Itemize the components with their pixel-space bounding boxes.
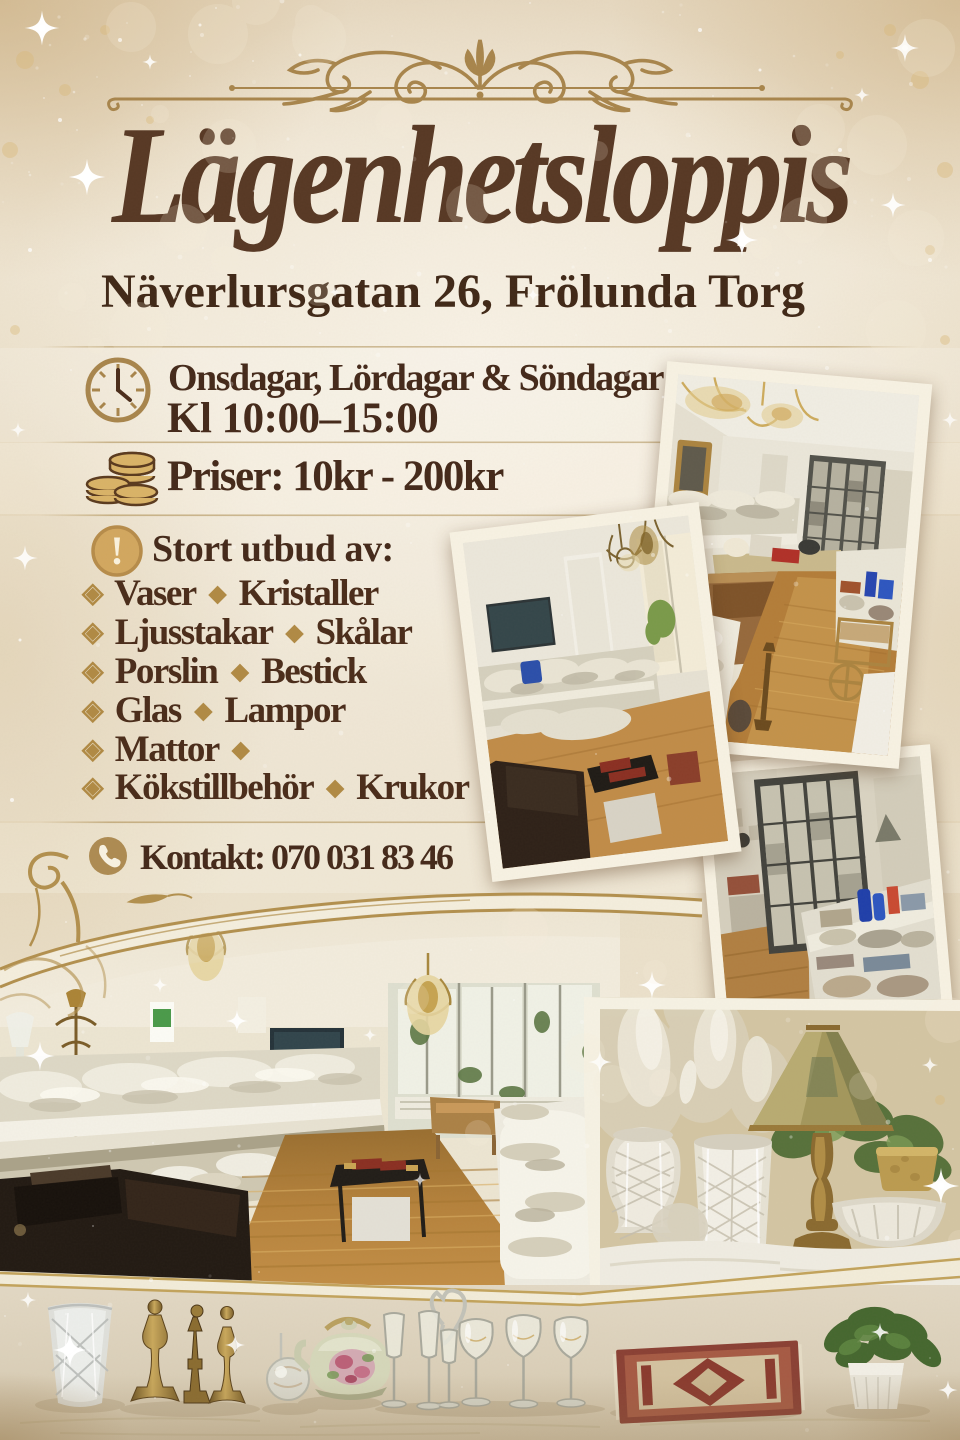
svg-text:!: !: [110, 528, 123, 573]
